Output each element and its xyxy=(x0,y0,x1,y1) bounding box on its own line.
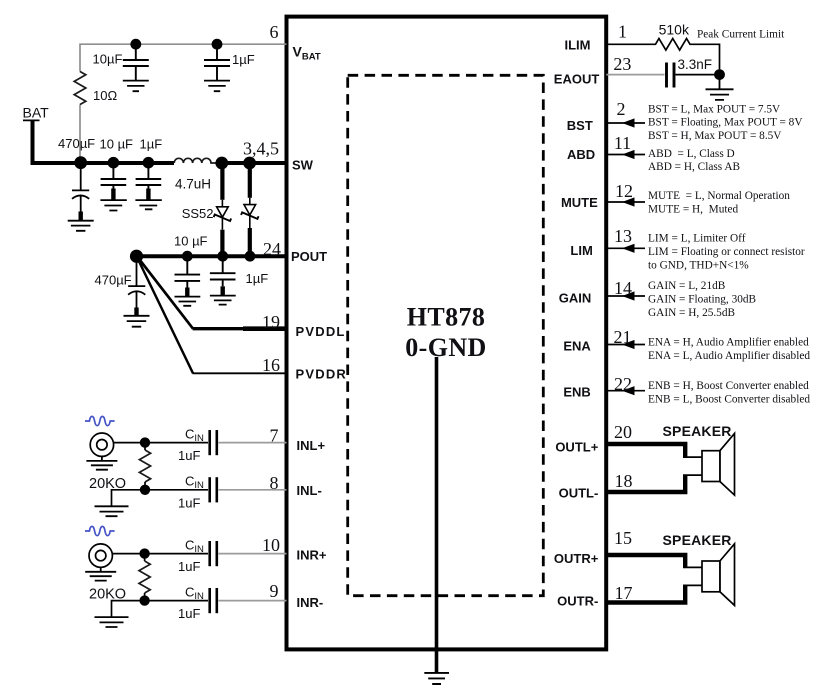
svg-text:1uF: 1uF xyxy=(178,495,200,510)
svg-text:OUTL+: OUTL+ xyxy=(555,440,598,455)
svg-text:9: 9 xyxy=(270,581,279,601)
svg-text:1uF: 1uF xyxy=(178,448,200,463)
svg-text:GAIN = Floating, 30dB: GAIN = Floating, 30dB xyxy=(648,294,756,306)
svg-text:POUT: POUT xyxy=(291,249,327,264)
svg-text:7: 7 xyxy=(270,426,279,446)
svg-text:18: 18 xyxy=(615,471,633,491)
svg-text:HT878: HT878 xyxy=(407,303,486,332)
svg-text:ABD = L, Class D: ABD = L, Class D xyxy=(648,148,735,160)
svg-text:ENB: ENB xyxy=(563,385,590,400)
svg-text:BAT: BAT xyxy=(23,105,50,121)
svg-text:Peak Current Limit: Peak Current Limit xyxy=(697,29,785,41)
svg-text:EAOUT: EAOUT xyxy=(554,72,600,87)
svg-text:BST = Floating, Max POUT = 8V: BST = Floating, Max POUT = 8V xyxy=(648,117,803,129)
svg-text:MUTE: MUTE xyxy=(561,195,598,210)
svg-text:6: 6 xyxy=(270,22,279,42)
svg-text:GAIN = H, 25.5dB: GAIN = H, 25.5dB xyxy=(648,307,735,319)
svg-text:10 µF: 10 µF xyxy=(100,136,134,151)
svg-text:to GND, THD+N<1%: to GND, THD+N<1% xyxy=(648,260,749,272)
svg-text:OUTR+: OUTR+ xyxy=(554,551,599,566)
svg-text:PVDDR: PVDDR xyxy=(296,367,348,382)
svg-text:1uF: 1uF xyxy=(178,606,200,621)
svg-text:12: 12 xyxy=(615,181,633,201)
svg-text:13: 13 xyxy=(614,226,632,246)
svg-text:10: 10 xyxy=(262,535,280,555)
svg-text:PVDDL: PVDDL xyxy=(296,324,346,339)
svg-text:2: 2 xyxy=(617,99,626,119)
svg-text:MUTE = H, Muted: MUTE = H, Muted xyxy=(648,203,739,215)
svg-text:24: 24 xyxy=(263,239,281,259)
svg-text:10Ω: 10Ω xyxy=(93,88,117,103)
svg-text:ENB = L, Boost Converter disab: ENB = L, Boost Converter disabled xyxy=(648,394,810,406)
svg-text:20: 20 xyxy=(614,422,632,442)
svg-text:INL+: INL+ xyxy=(297,438,326,453)
svg-text:SPEAKER: SPEAKER xyxy=(663,532,732,548)
svg-text:1µF: 1µF xyxy=(232,52,255,67)
svg-text:SS52: SS52 xyxy=(182,206,214,221)
svg-text:3,4,5: 3,4,5 xyxy=(243,139,279,159)
svg-text:14: 14 xyxy=(614,278,632,298)
svg-text:INL-: INL- xyxy=(297,483,322,498)
svg-text:510k: 510k xyxy=(659,22,690,38)
svg-text:LIM: LIM xyxy=(570,243,592,258)
svg-text:ENB = H, Boost Converter enabl: ENB = H, Boost Converter enabled xyxy=(648,380,809,392)
svg-text:19: 19 xyxy=(262,312,280,332)
svg-text:LIM = Floating or connect resi: LIM = Floating or connect resistor xyxy=(648,246,805,258)
svg-text:BST = H, Max POUT = 8.5V: BST = H, Max POUT = 8.5V xyxy=(648,130,782,142)
svg-text:ILIM: ILIM xyxy=(565,38,591,53)
svg-text:GAIN: GAIN xyxy=(559,291,592,306)
svg-text:3.3nF: 3.3nF xyxy=(678,57,713,72)
svg-text:SPEAKER: SPEAKER xyxy=(663,423,732,439)
svg-text:4.7uH: 4.7uH xyxy=(175,177,211,192)
svg-text:OUTR-: OUTR- xyxy=(557,594,598,609)
svg-text:1µF: 1µF xyxy=(246,271,269,286)
svg-text:LIM = L, Limiter Off: LIM = L, Limiter Off xyxy=(648,233,746,245)
svg-text:23: 23 xyxy=(613,54,631,74)
svg-text:MUTE = L, Normal Operation: MUTE = L, Normal Operation xyxy=(648,190,790,202)
svg-text:BST: BST xyxy=(567,118,593,133)
svg-text:22: 22 xyxy=(614,374,632,394)
svg-text:21: 21 xyxy=(614,327,632,347)
svg-text:1: 1 xyxy=(618,22,627,42)
svg-text:ENA = H, Audio Amplifier enabl: ENA = H, Audio Amplifier enabled xyxy=(648,337,809,349)
svg-text:10µF: 10µF xyxy=(93,52,123,67)
svg-text:INR-: INR- xyxy=(297,595,324,610)
svg-text:GAIN = L, 21dB: GAIN = L, 21dB xyxy=(648,280,725,292)
svg-text:470µF: 470µF xyxy=(58,136,95,151)
svg-text:17: 17 xyxy=(615,583,633,603)
svg-text:OUTL-: OUTL- xyxy=(559,486,599,501)
svg-text:ENA = L, Audio Amplifier disab: ENA = L, Audio Amplifier disabled xyxy=(648,350,810,362)
svg-text:ENA: ENA xyxy=(563,339,591,354)
svg-text:1uF: 1uF xyxy=(178,559,200,574)
svg-text:0-GND: 0-GND xyxy=(405,333,486,362)
svg-text:16: 16 xyxy=(262,355,280,375)
svg-text:1µF: 1µF xyxy=(140,136,163,151)
svg-text:ABD: ABD xyxy=(567,147,595,162)
svg-text:BST = L, Max POUT = 7.5V: BST = L, Max POUT = 7.5V xyxy=(648,103,781,115)
svg-text:SW: SW xyxy=(292,158,314,173)
svg-text:15: 15 xyxy=(614,528,632,548)
svg-text:8: 8 xyxy=(270,473,279,493)
svg-text:ABD = H, Class AB: ABD = H, Class AB xyxy=(648,161,740,173)
svg-text:11: 11 xyxy=(614,133,631,153)
svg-text:470µF: 470µF xyxy=(95,273,132,288)
svg-text:INR+: INR+ xyxy=(297,548,327,563)
svg-text:10 µF: 10 µF xyxy=(174,234,208,249)
